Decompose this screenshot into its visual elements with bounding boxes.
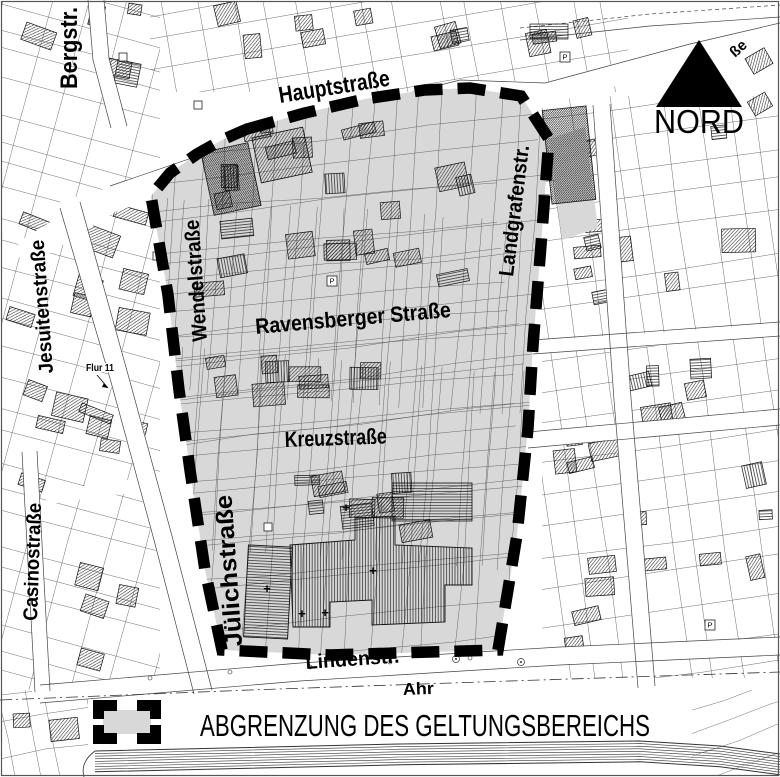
label-ahr: Ahr xyxy=(402,679,434,699)
utility-box-icon xyxy=(264,523,272,531)
building xyxy=(308,500,324,515)
building xyxy=(350,367,378,389)
building xyxy=(252,382,286,407)
building xyxy=(690,358,712,379)
building xyxy=(530,24,568,39)
utility-box-icon xyxy=(119,53,127,61)
building xyxy=(298,385,330,398)
city-map: +++++PPPPP Bergstr. Hauptstraße Jesuiten… xyxy=(0,0,780,777)
building xyxy=(742,462,767,489)
building xyxy=(349,499,375,518)
building xyxy=(324,243,357,260)
legend-dash xyxy=(93,700,104,719)
label-kreuzstrasse: Kreuzstraße xyxy=(284,423,387,452)
legend-title: ABGRENZUNG DES GELTUNGSBEREICHS xyxy=(200,708,650,743)
building xyxy=(588,555,617,574)
building xyxy=(664,272,680,291)
building xyxy=(646,366,659,387)
building xyxy=(99,438,120,453)
building xyxy=(294,15,313,32)
survey-point xyxy=(228,670,232,674)
legend-dash xyxy=(150,725,161,744)
north-label: NORD xyxy=(654,103,744,140)
building xyxy=(285,231,315,259)
church-cross-icon: + xyxy=(298,606,306,621)
label-casinostrasse: Casinostraße xyxy=(20,502,46,621)
building xyxy=(13,713,30,728)
plan-sheet: +++++PPPPP Bergstr. Hauptstraße Jesuiten… xyxy=(0,0,780,777)
building xyxy=(127,3,142,15)
building xyxy=(243,34,262,59)
building xyxy=(49,717,80,741)
church-cross-icon: + xyxy=(263,581,271,596)
survey-point xyxy=(520,661,522,663)
building xyxy=(325,173,345,194)
building xyxy=(684,380,706,400)
parking-sign-letter: P xyxy=(329,277,334,286)
legend-dash xyxy=(93,725,104,744)
building xyxy=(699,552,721,566)
legend-dash xyxy=(150,700,161,719)
church-cross-icon: + xyxy=(321,605,329,620)
survey-point xyxy=(148,676,152,680)
building xyxy=(265,361,289,383)
church-cross-icon: + xyxy=(342,500,350,515)
building xyxy=(574,245,602,259)
building xyxy=(585,577,615,597)
building xyxy=(354,8,373,26)
label-bergstrasse: Bergstr. xyxy=(56,7,83,89)
building xyxy=(722,228,756,252)
building xyxy=(116,584,139,607)
label-flur-11: Flur 11 xyxy=(86,362,114,374)
building xyxy=(759,510,773,520)
parking-sign-letter: P xyxy=(562,53,567,62)
church-cross-icon: + xyxy=(369,563,377,578)
building xyxy=(114,60,142,88)
legend-swatch-fill xyxy=(103,710,151,734)
utility-box-icon xyxy=(194,101,202,109)
building xyxy=(380,201,401,220)
building-rows xyxy=(392,483,472,521)
parking-sign-letter: P xyxy=(707,621,712,630)
survey-point xyxy=(455,658,457,660)
building xyxy=(220,218,254,239)
